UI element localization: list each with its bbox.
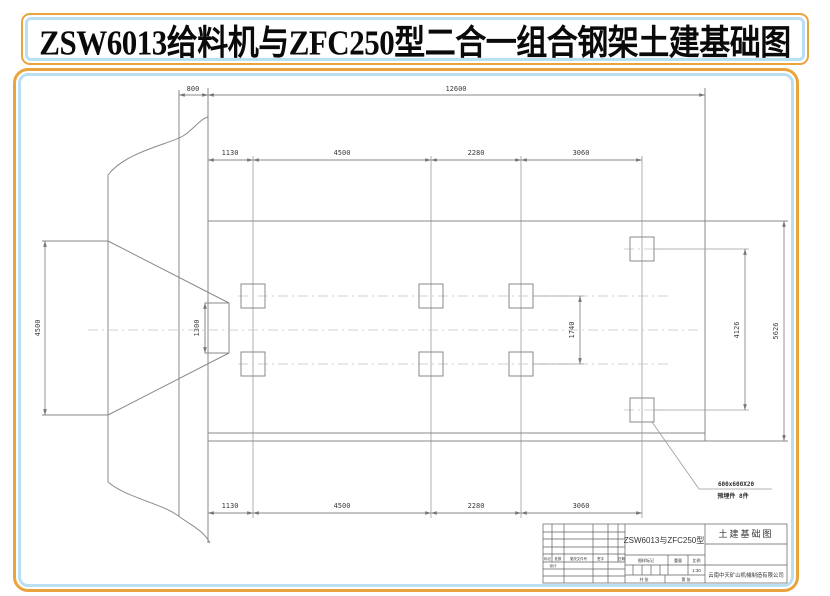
- dim-5626-group: 5626: [772, 221, 784, 441]
- rev-header-date: 日期: [618, 556, 625, 561]
- foundation-pads: [241, 237, 654, 422]
- callout-leader-line: [652, 422, 772, 489]
- dim-bottom-1130: 1130: [222, 502, 239, 510]
- rev-header-sign: 签字: [597, 556, 604, 561]
- weight-header: 重量: [674, 557, 682, 563]
- dim-bottom-3060: 3060: [573, 502, 590, 510]
- scale-value: 1:30: [692, 568, 701, 573]
- company-name: 云南中天矿山机械制造有限公司: [708, 571, 783, 579]
- scale-header: 比例: [693, 557, 701, 563]
- dim-800: 800: [187, 85, 200, 93]
- upper-span-dimension-row: 1130 4500 2280 3060: [208, 149, 642, 160]
- dim-4126: 4126: [733, 322, 741, 339]
- mark-header: 图样标记: [638, 557, 654, 563]
- dim-bottom-2280: 2280: [468, 502, 485, 510]
- dim-bottom-4500: 4500: [334, 502, 351, 510]
- rev-header-mark: 标记: [544, 556, 551, 561]
- lower-span-dimension-row: 1130 4500 2280 3060: [208, 502, 642, 513]
- dim-top-4500: 4500: [334, 149, 351, 157]
- dim-top-2280: 2280: [468, 149, 485, 157]
- model-text: ZSW6013与ZFC250型: [624, 536, 704, 545]
- dim-4500-vertical: 4500: [34, 320, 42, 337]
- dim-top-3060: 3060: [573, 149, 590, 157]
- design-label: 设计: [549, 563, 557, 568]
- top-dimension-row: 800 12600: [179, 85, 705, 95]
- dim-5626: 5626: [772, 323, 780, 340]
- rev-header-count: 处数: [555, 556, 562, 561]
- rev-header-file: 更改文件号: [570, 556, 588, 561]
- sheet-number: 第 张: [681, 576, 690, 582]
- hopper-outline: [42, 90, 229, 543]
- title-block: 标记 处数 更改文件号 签字 日期 设计 ZSW6013与ZFC250型 土建基…: [543, 524, 787, 583]
- dim-1740: 1740: [568, 322, 576, 339]
- dim-12600: 12600: [445, 85, 466, 93]
- break-line-bottom: [108, 482, 210, 543]
- dim-top-1130: 1130: [222, 149, 239, 157]
- drawing-title-text: 土建基础图: [718, 528, 773, 539]
- sheet-total: 共 张: [639, 576, 648, 582]
- embedded-plate-callout: 600x600X20 预埋件 8件: [652, 422, 772, 500]
- foundation-slab-outline: [208, 221, 788, 441]
- dim-4126-group: 4126: [654, 249, 749, 410]
- break-line-top: [108, 117, 208, 175]
- column-grid-lines: [208, 88, 705, 543]
- callout-label-text: 预埋件 8件: [717, 492, 748, 500]
- hopper-outlet: [205, 303, 229, 353]
- foundation-plan-drawing: 800 12600 1130 4500 2280 3060 1130 4500 …: [0, 0, 830, 596]
- callout-size-text: 600x600X20: [718, 481, 755, 488]
- centerlines: [88, 249, 700, 410]
- dim-1300: 1300: [193, 320, 201, 337]
